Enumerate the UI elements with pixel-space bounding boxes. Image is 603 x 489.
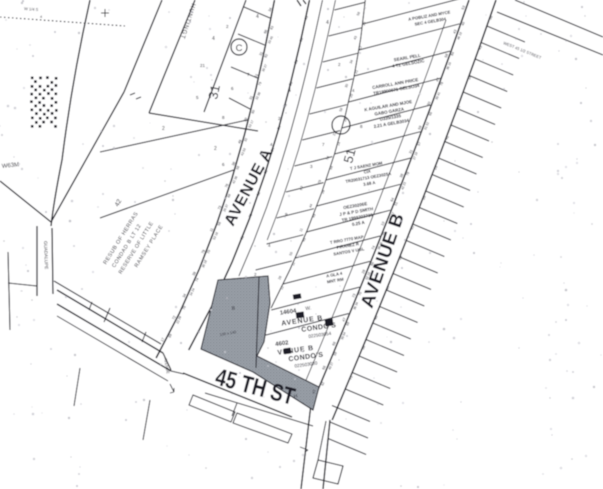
svg-text:2: 2 <box>162 126 165 132</box>
svg-text:2: 2 <box>300 186 303 192</box>
svg-text:2: 2 <box>214 146 217 152</box>
svg-text:4: 4 <box>40 15 42 19</box>
svg-text:W.: W. <box>305 305 312 312</box>
svg-text:31: 31 <box>205 83 223 100</box>
svg-text:4: 4 <box>288 88 291 94</box>
svg-text:4: 4 <box>256 14 259 20</box>
svg-text:4: 4 <box>326 20 329 26</box>
svg-text:21: 21 <box>200 63 206 68</box>
svg-text:C: C <box>236 43 243 54</box>
svg-text:GUADALUPE: GUADALUPE <box>43 241 49 270</box>
svg-text:4: 4 <box>212 36 215 42</box>
svg-text:W 1/4 S: W 1/4 S <box>24 6 39 12</box>
